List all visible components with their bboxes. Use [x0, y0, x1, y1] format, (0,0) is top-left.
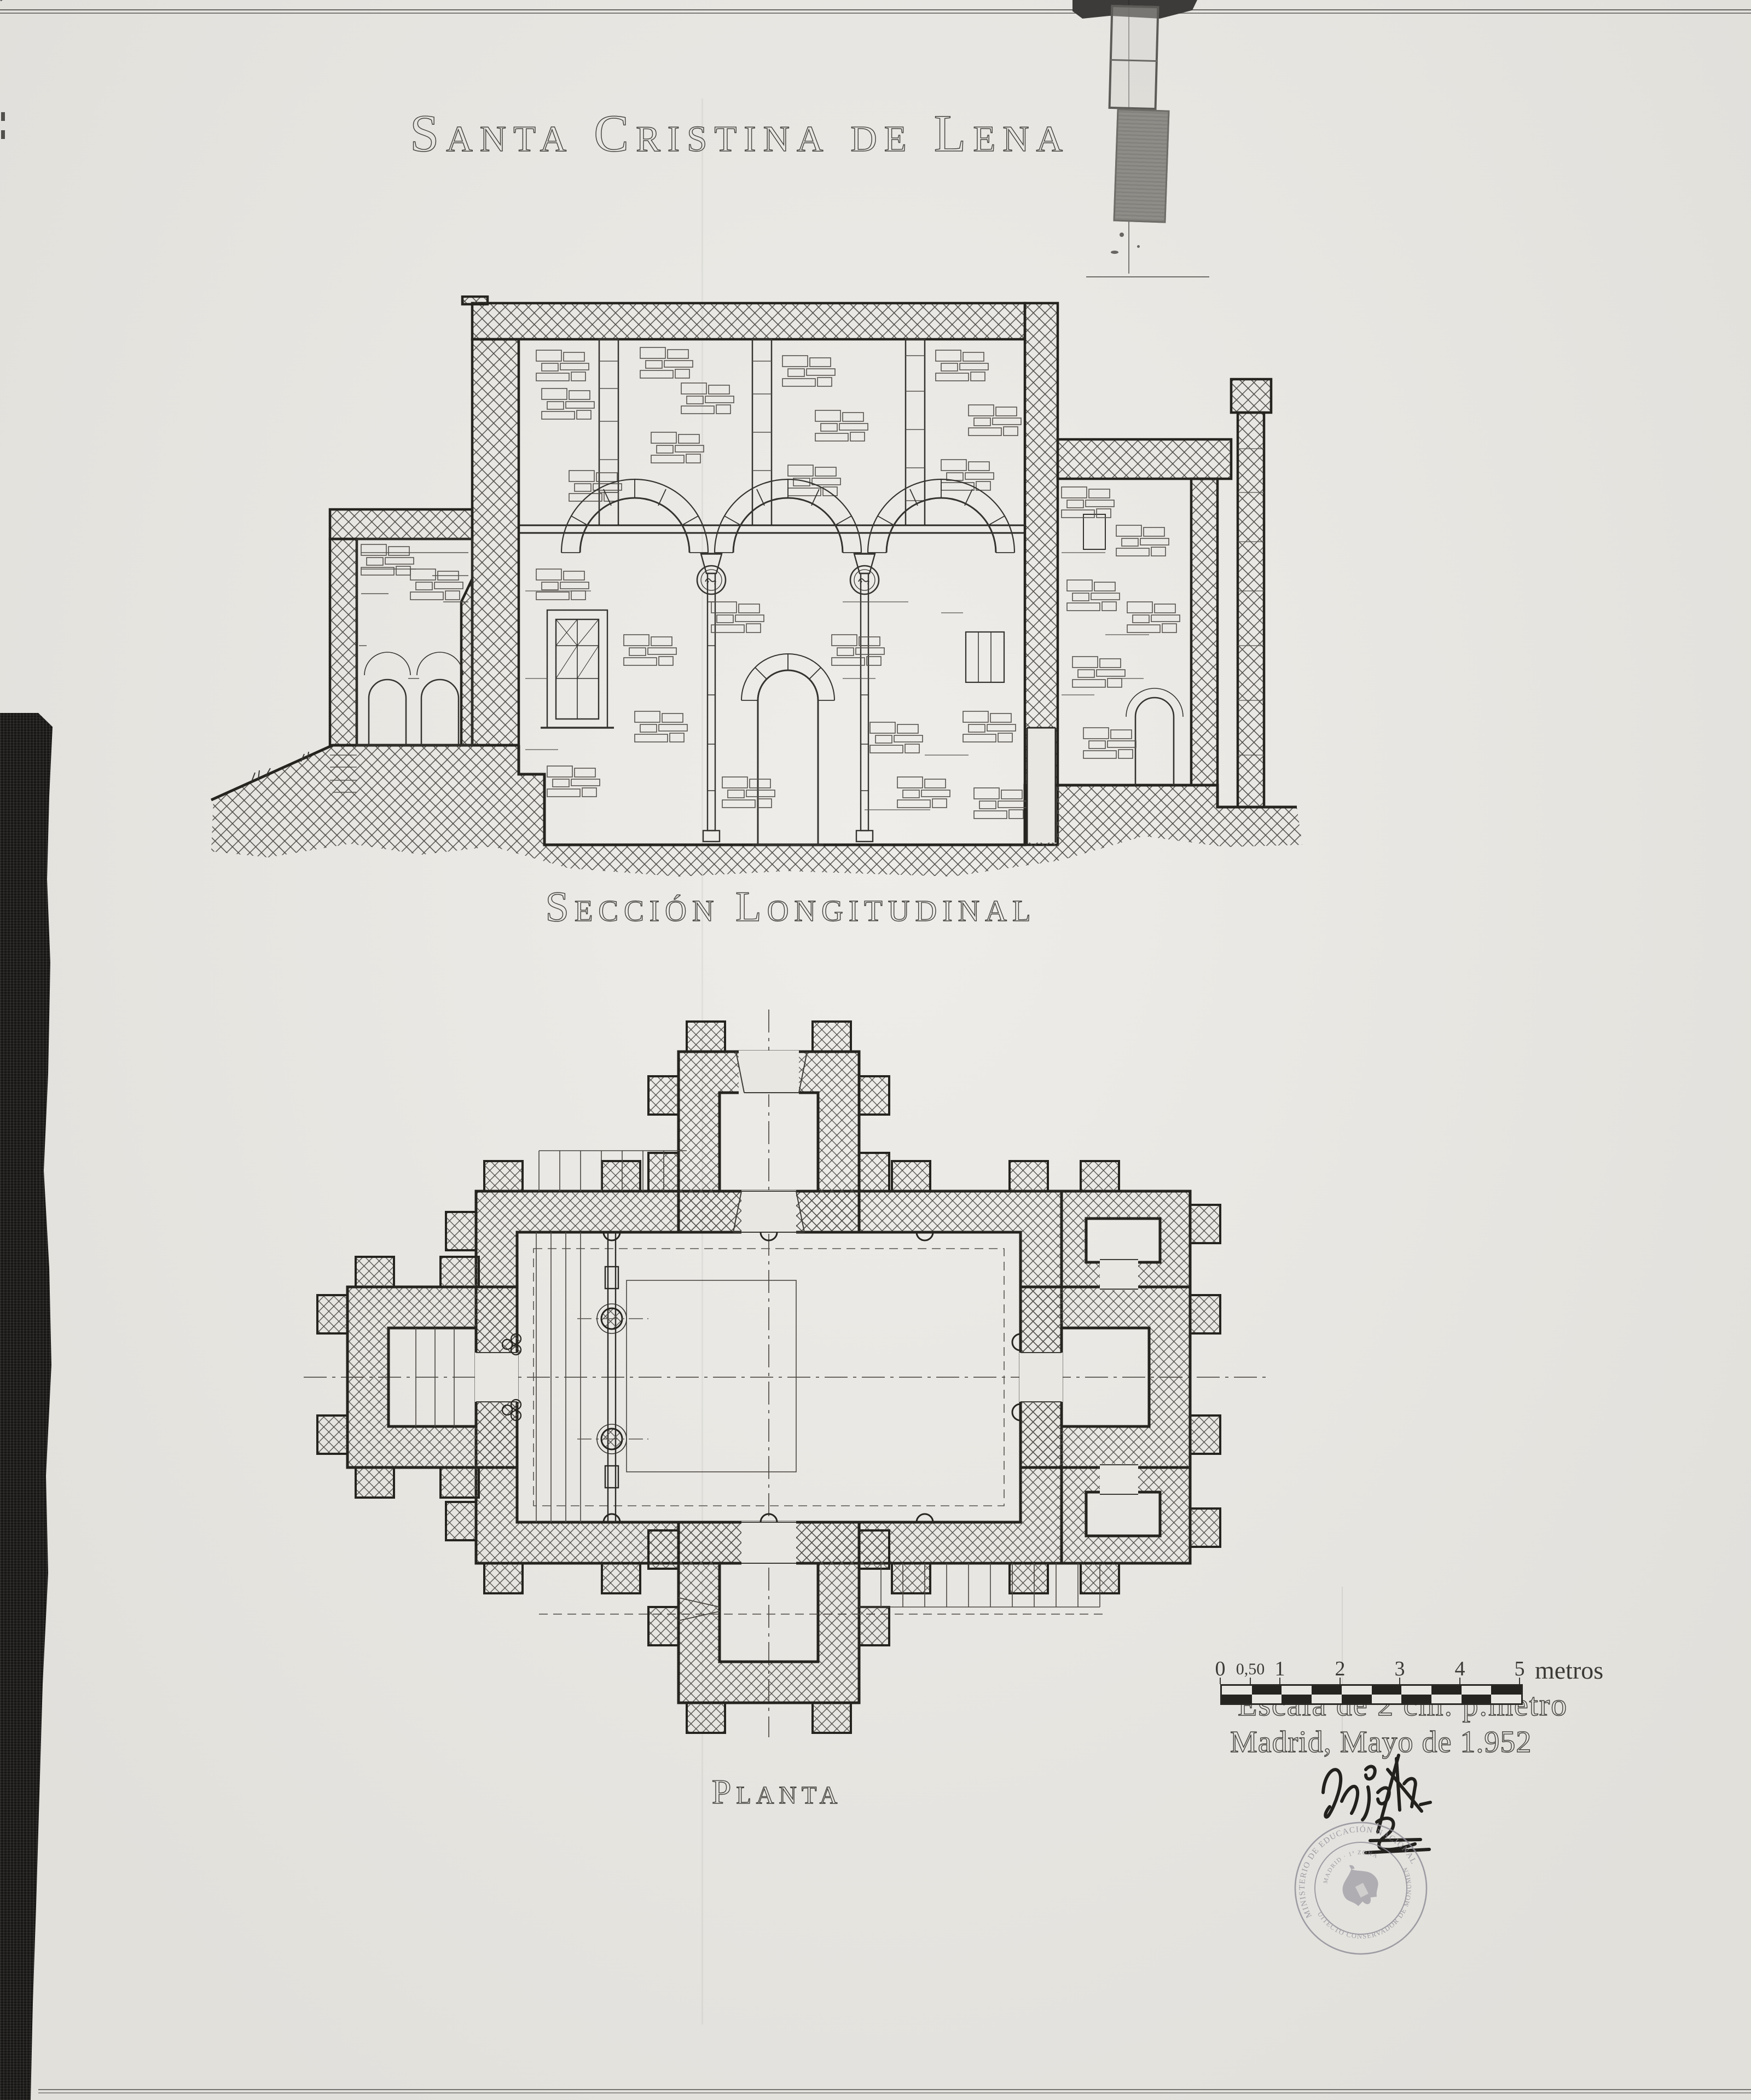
- edge-mark: [1, 112, 5, 121]
- screen-columns: [577, 1304, 648, 1454]
- tape-mark-solid: [1113, 108, 1169, 223]
- ink-dot: [1111, 251, 1118, 254]
- tape-mark-outline: [1109, 5, 1159, 110]
- scale-bar: 0 0,50 1 2 3 4 5 metros: [1209, 1652, 1559, 1713]
- edge-mark: [1, 130, 5, 139]
- section-label: Sección Longitudinal: [545, 882, 1036, 931]
- bottom-rule-line: [38, 2089, 1751, 2090]
- stray-line: [1086, 276, 1209, 277]
- drawing-title: Santa Cristina de Lena: [410, 103, 1070, 164]
- longitudinal-section-drawing: [186, 295, 1330, 881]
- binding-cloth-strip: [0, 713, 55, 2100]
- ground-hatch: [211, 745, 1302, 877]
- top-rule-line: [0, 9, 1751, 10]
- axis-lines: [304, 1010, 1267, 1737]
- architectural-drawing-sheet: Santa Cristina de Lena Sección Longitudi…: [0, 0, 1751, 2100]
- scale-bar-checker: [1220, 1684, 1523, 1705]
- plan-label: Planta: [712, 1772, 842, 1812]
- stamp-eagle-emblem: [1333, 1857, 1385, 1912]
- nave-lower-wall: [525, 569, 1027, 845]
- clerestory: [519, 339, 1025, 533]
- scale-tick-label: 0,50: [1236, 1660, 1265, 1679]
- floor-plan-drawing: [304, 1010, 1267, 1737]
- scale-unit-label: metros: [1535, 1656, 1603, 1685]
- bottom-rule-line-2: [38, 2092, 1751, 2093]
- top-rule-line-2: [0, 13, 1751, 14]
- ministry-rubber-stamp: MINISTERIO DE EDUCACIÓN NACIONAL ARQUITE…: [1287, 1814, 1435, 1962]
- annex-tribune: [357, 539, 472, 745]
- ink-dot: [1120, 233, 1124, 237]
- ink-dot: [1137, 245, 1140, 248]
